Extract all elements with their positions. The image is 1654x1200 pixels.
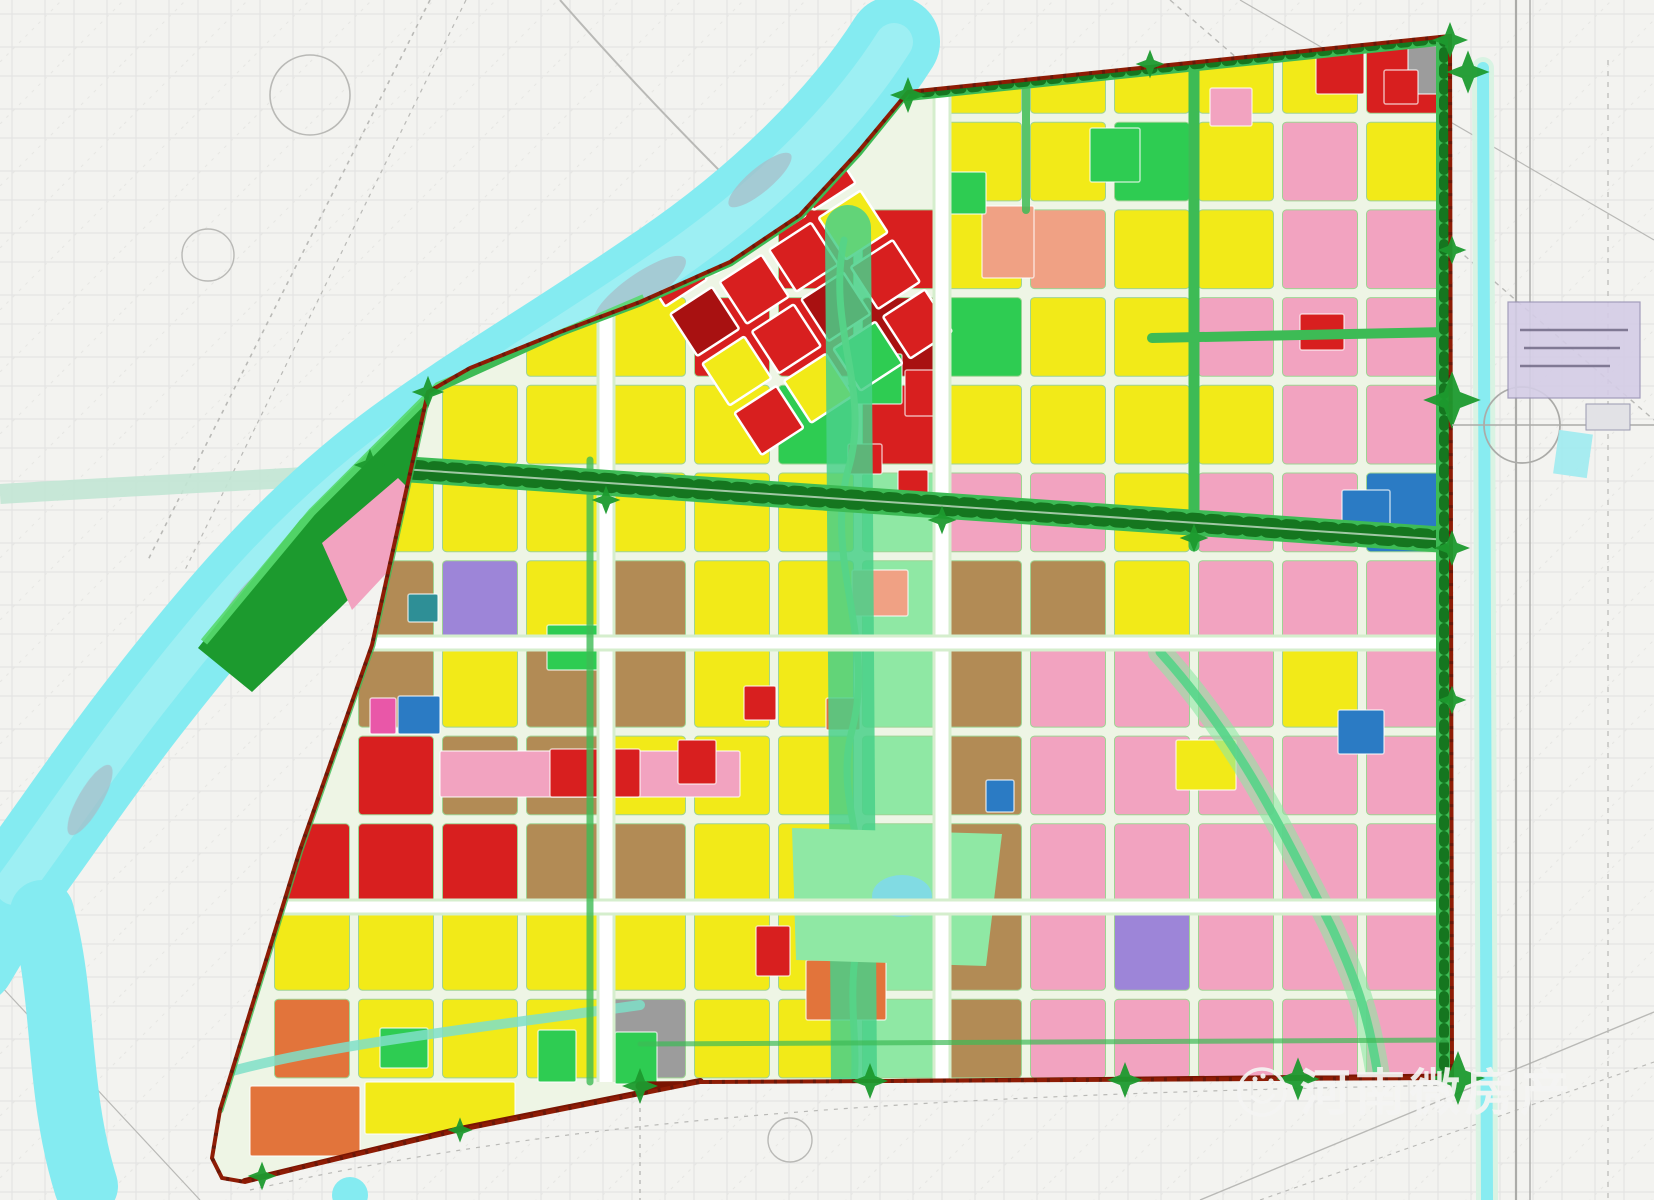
land-parcel — [1283, 561, 1358, 640]
land-parcel — [947, 999, 1022, 1078]
land-parcel — [550, 749, 640, 797]
land-parcel — [398, 696, 440, 734]
land-parcel — [443, 385, 518, 464]
land-parcel — [443, 561, 518, 640]
map-canvas: 河南微房产 — [0, 0, 1654, 1200]
land-parcel — [275, 912, 350, 991]
land-parcel — [986, 780, 1014, 812]
land-parcel — [1338, 710, 1384, 754]
land-parcel — [947, 298, 1022, 377]
watermark-text: 河南微房产 — [1300, 1064, 1575, 1122]
land-parcel — [443, 648, 518, 727]
land-parcel — [1031, 210, 1106, 289]
land-parcel — [1367, 561, 1442, 640]
land-parcel — [1031, 298, 1106, 377]
land-parcel — [1199, 912, 1274, 991]
land-parcel — [1115, 561, 1190, 640]
land-parcel — [695, 824, 770, 903]
land-parcel — [1031, 999, 1106, 1078]
land-parcel — [947, 648, 1022, 727]
land-parcel — [1199, 122, 1274, 201]
land-parcel — [695, 999, 770, 1078]
land-parcel — [695, 561, 770, 640]
land-parcel — [443, 912, 518, 991]
land-parcel — [1031, 648, 1106, 727]
pond-patch — [1553, 430, 1593, 478]
land-parcel — [250, 1086, 360, 1156]
land-parcel — [1283, 210, 1358, 289]
land-parcel — [1031, 736, 1106, 815]
land-parcel — [1115, 912, 1190, 991]
land-parcel — [744, 686, 776, 720]
land-parcel — [1384, 70, 1418, 104]
land-parcel — [408, 594, 438, 622]
land-parcel — [370, 698, 396, 734]
east-channel — [1483, 68, 1487, 1200]
land-parcel — [1210, 88, 1252, 126]
land-parcel — [1115, 385, 1190, 464]
land-parcel — [359, 912, 434, 991]
land-parcel — [1367, 824, 1442, 903]
land-parcel — [611, 824, 686, 903]
land-parcel — [1316, 52, 1364, 94]
land-parcel — [1367, 210, 1442, 289]
land-parcel — [1090, 128, 1140, 182]
land-parcel — [947, 385, 1022, 464]
land-parcel — [1283, 385, 1358, 464]
land-parcel — [611, 561, 686, 640]
land-parcel — [1367, 912, 1442, 991]
land-parcel — [1115, 824, 1190, 903]
land-parcel — [538, 1030, 576, 1082]
land-parcel — [1199, 210, 1274, 289]
land-parcel — [359, 736, 434, 815]
land-parcel — [1283, 122, 1358, 201]
land-parcel — [982, 206, 1034, 278]
land-parcel — [947, 561, 1022, 640]
land-parcel — [615, 1032, 657, 1084]
land-parcel — [611, 912, 686, 991]
land-parcel — [1367, 385, 1442, 464]
land-parcel — [359, 824, 434, 903]
land-parcel — [275, 999, 350, 1078]
land-parcel — [443, 999, 518, 1078]
land-parcel — [1031, 824, 1106, 903]
land-parcel — [1115, 210, 1190, 289]
land-parcel — [527, 385, 602, 464]
land-parcel — [756, 926, 790, 976]
land-parcel — [1031, 912, 1106, 991]
land-parcel — [1199, 385, 1274, 464]
land-parcel — [443, 824, 518, 903]
land-parcel — [1199, 561, 1274, 640]
land-parcel — [1031, 561, 1106, 640]
land-parcel — [611, 648, 686, 727]
land-parcel — [678, 740, 716, 784]
land-parcel — [611, 385, 686, 464]
planning-map: 河南微房产 — [0, 0, 1654, 1200]
land-parcel — [1367, 122, 1442, 201]
land-parcel — [1031, 385, 1106, 464]
land-parcel — [1199, 824, 1274, 903]
